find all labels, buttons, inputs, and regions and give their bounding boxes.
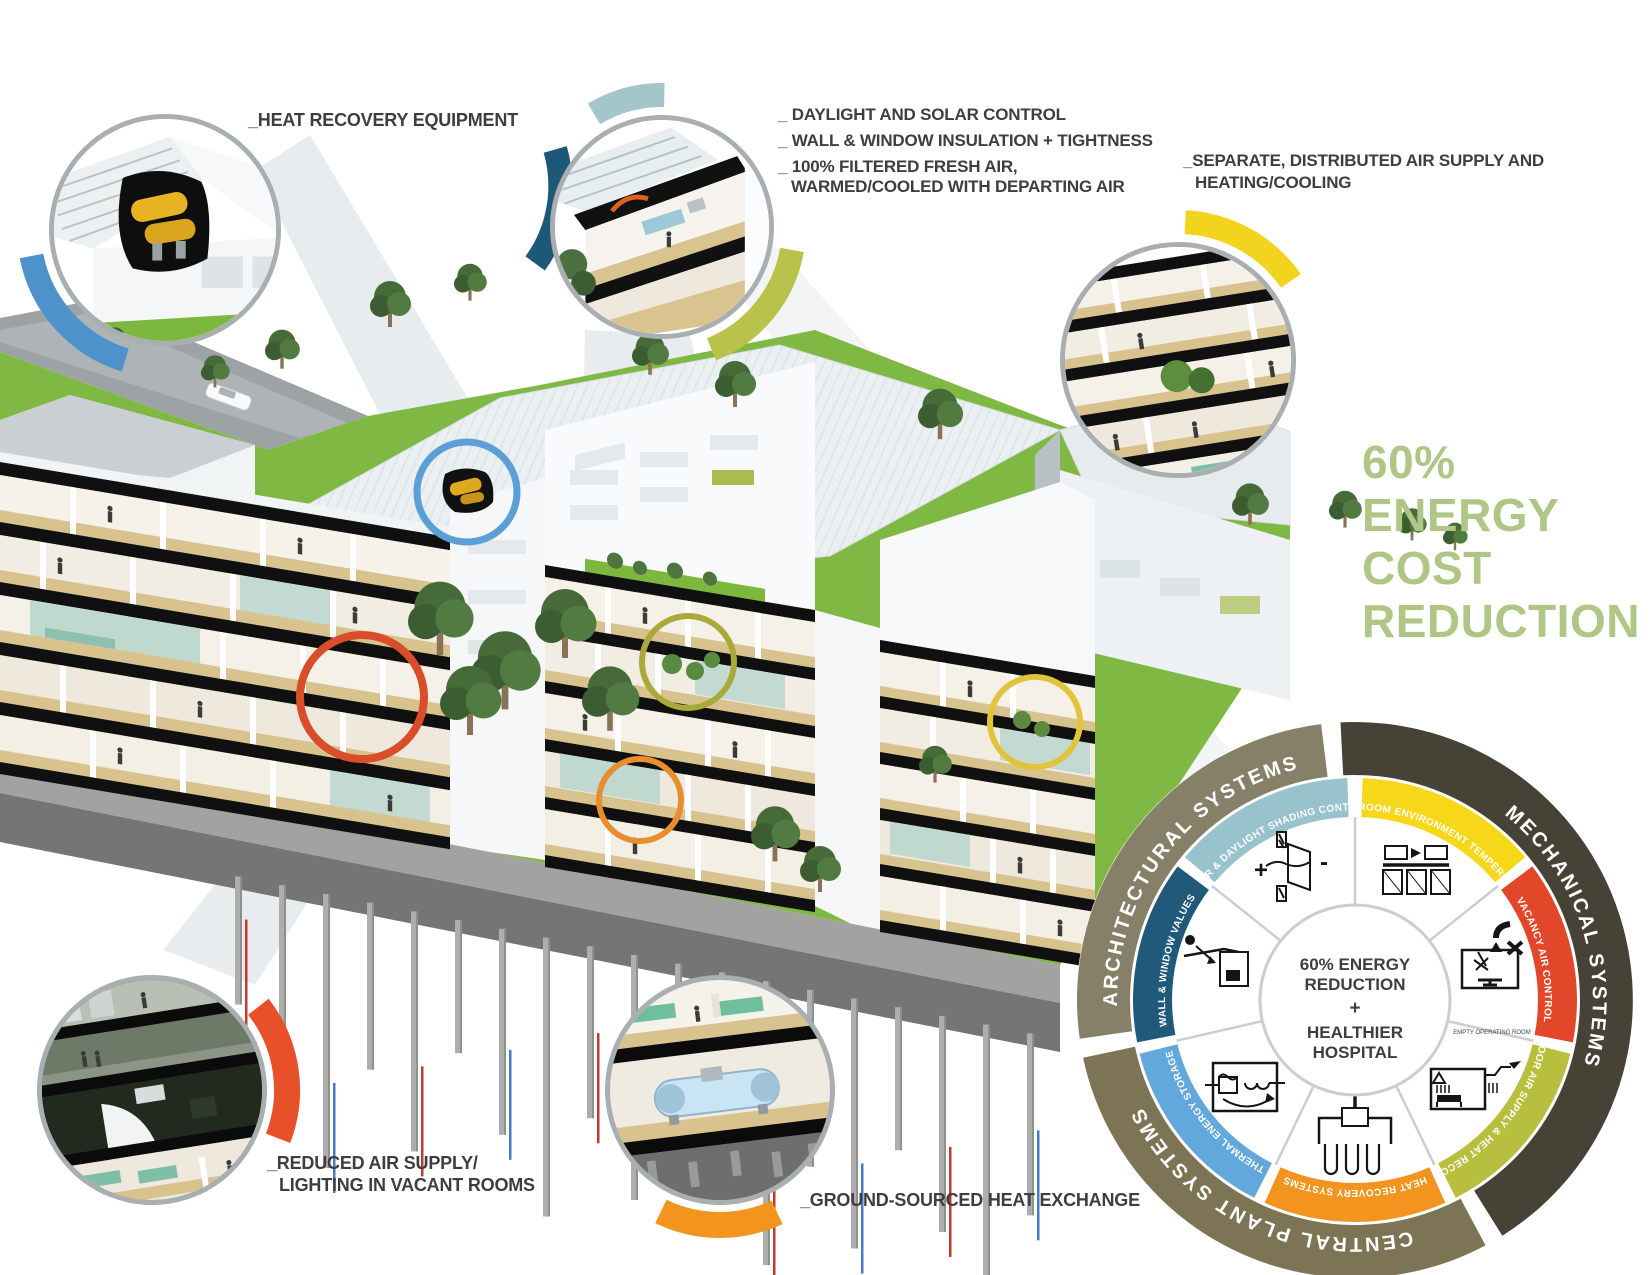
daylight-label-3: _ 100% FILTERED FRESH AIR, xyxy=(778,156,1017,177)
svg-text:60% ENERGY: 60% ENERGY xyxy=(1300,955,1411,974)
separate-air-photo-circle xyxy=(1060,242,1296,478)
daylight-label-1: _ DAYLIGHT AND SOLAR CONTROL xyxy=(778,104,1066,125)
systems-wheel-diagram: + - EMPTY OPERATING ROOM xyxy=(1035,680,1650,1275)
heat-recovery-photo-circle xyxy=(49,114,281,346)
reduced-air-label-1: _REDUCED AIR SUPPLY/ xyxy=(267,1153,478,1174)
svg-text:REDUCTION: REDUCTION xyxy=(1304,975,1405,994)
rooftop-heat-recovery-unit xyxy=(443,468,494,512)
svg-text:-: - xyxy=(1320,849,1328,876)
callout-daylight xyxy=(510,75,814,379)
daylight-photo-circle xyxy=(550,115,774,339)
infographic-canvas: + - EMPTY OPERATING ROOM xyxy=(0,0,1650,1275)
heat-recovery-label: _HEAT RECOVERY EQUIPMENT xyxy=(248,110,518,131)
headline-energy-cost-reduction: 60% ENERGY COST REDUCTION xyxy=(1362,436,1640,648)
reduced-air-photo-circle xyxy=(37,975,267,1205)
vacancy-caption: EMPTY OPERATING ROOM xyxy=(1453,1030,1530,1036)
svg-text:+: + xyxy=(1254,857,1268,884)
separate-air-label-1: _SEPARATE, DISTRIBUTED AIR SUPPLY AND xyxy=(1183,150,1544,171)
daylight-label-2: _ WALL & WINDOW INSULATION + TIGHTNESS xyxy=(778,130,1153,151)
icon-in-room-tempering xyxy=(1383,846,1450,894)
callout-separate-air xyxy=(1020,202,1336,518)
daylight-label-4: WARMED/COOLED WITH DEPARTING AIR xyxy=(791,176,1125,197)
ground-heat-label: _GROUND-SOURCED HEAT EXCHANGE xyxy=(800,1190,1140,1211)
callout-reduced-air xyxy=(0,935,307,1245)
icon-thermal-storage xyxy=(1205,1063,1285,1111)
svg-text:+: + xyxy=(1349,998,1360,1019)
reduced-air-label-2: LIGHTING IN VACANT ROOMS xyxy=(279,1175,535,1196)
separate-air-label-2: HEATING/COOLING xyxy=(1195,172,1351,193)
svg-text:HEALTHIER: HEALTHIER xyxy=(1307,1023,1403,1042)
svg-text:HOSPITAL: HOSPITAL xyxy=(1313,1043,1398,1062)
ground-heat-photo-circle xyxy=(605,975,835,1205)
